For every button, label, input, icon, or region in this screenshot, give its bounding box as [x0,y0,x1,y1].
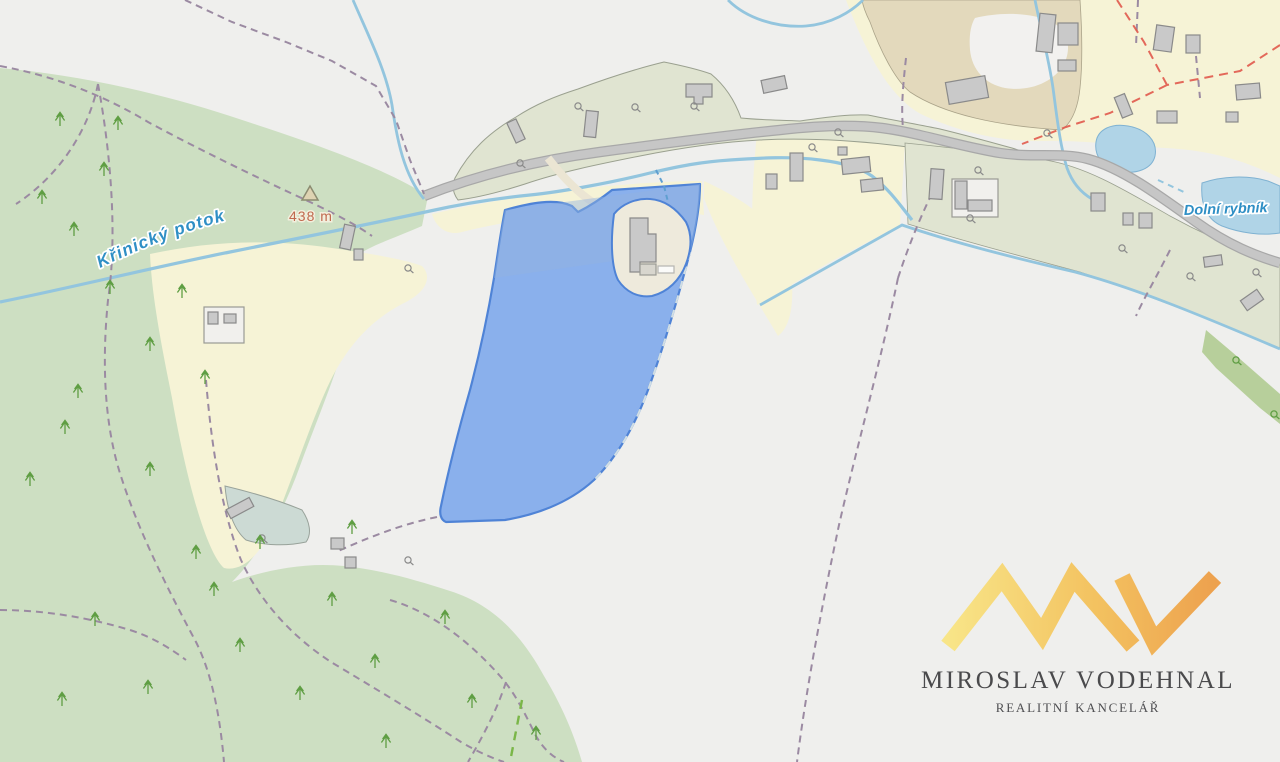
map-viewport[interactable]: 438 m Křinický potok Dolní rybník MIROSL… [0,0,1280,762]
building [354,249,363,260]
building [1203,255,1222,267]
building [584,110,599,137]
building [766,174,777,189]
building [841,157,870,175]
company-name: MIROSLAV VODEHNAL [921,667,1235,694]
building [1153,25,1174,52]
building [968,200,992,211]
building [838,147,847,155]
building [1226,112,1238,122]
elevation-label: 438 m [289,208,333,224]
building [929,169,944,200]
building [1091,193,1105,211]
pond-label: Dolní rybník [1184,200,1269,219]
building [224,314,236,323]
building [790,153,803,181]
company-tagline: REALITNÍ KANCELÁŘ [996,700,1161,715]
building [1157,111,1177,123]
building [1186,35,1200,53]
building [1058,23,1078,45]
building [345,557,356,568]
map-canvas[interactable]: 438 m Křinický potok Dolní rybník MIROSL… [0,0,1280,762]
building [1058,60,1076,71]
building [331,538,344,549]
building [1123,213,1133,225]
building [1036,13,1056,52]
building [1235,83,1260,100]
building [640,264,656,275]
building [860,178,883,192]
building [955,181,967,209]
building [1139,213,1152,228]
building [208,312,218,324]
building [658,266,674,273]
